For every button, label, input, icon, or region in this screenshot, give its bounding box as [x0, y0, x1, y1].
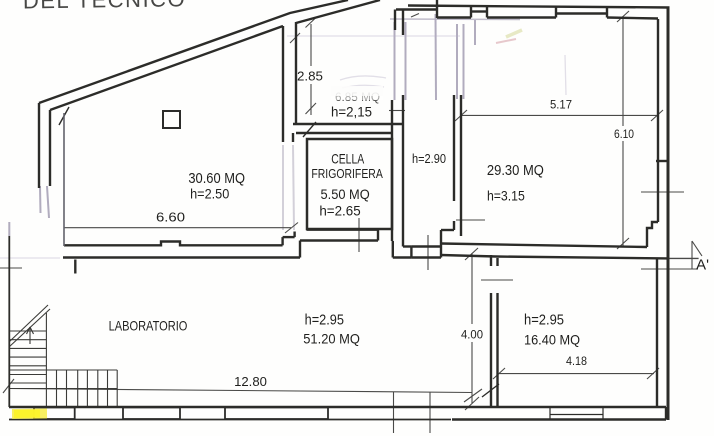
svg-text:29.30 MQ: 29.30 MQ: [487, 162, 544, 179]
svg-text:h=2.90: h=2.90: [412, 151, 446, 166]
svg-text:6.60: 6.60: [156, 211, 185, 225]
svg-text:h=2.65: h=2.65: [319, 203, 360, 219]
svg-text:h=2.95: h=2.95: [524, 313, 564, 329]
svg-text:2.85: 2.85: [297, 70, 323, 84]
svg-text:FRIGORIFERA: FRIGORIFERA: [311, 166, 383, 181]
svg-text:5.17: 5.17: [550, 98, 572, 112]
svg-text:4.00: 4.00: [461, 328, 483, 342]
svg-text:h=2,15: h=2,15: [331, 104, 372, 120]
svg-text:CELLA: CELLA: [331, 150, 364, 166]
svg-text:A': A': [696, 258, 709, 274]
svg-text:30.60 MQ: 30.60 MQ: [188, 170, 245, 187]
svg-text:LABORATORIO: LABORATORIO: [109, 318, 188, 333]
svg-text:16.40 MQ: 16.40 MQ: [524, 333, 580, 348]
svg-text:6.10: 6.10: [614, 127, 634, 141]
svg-text:h=2.50: h=2.50: [190, 186, 229, 202]
svg-text:51.20 MQ: 51.20 MQ: [303, 331, 360, 346]
svg-text:h=2.95: h=2.95: [305, 313, 344, 329]
svg-text:5.50 MQ: 5.50 MQ: [321, 186, 370, 202]
svg-text:12.80: 12.80: [234, 375, 267, 389]
svg-text:h=3.15: h=3.15: [487, 187, 525, 203]
svg-text:DEL TECNICO: DEL TECNICO: [23, 0, 187, 13]
svg-text:4.18: 4.18: [566, 356, 587, 368]
